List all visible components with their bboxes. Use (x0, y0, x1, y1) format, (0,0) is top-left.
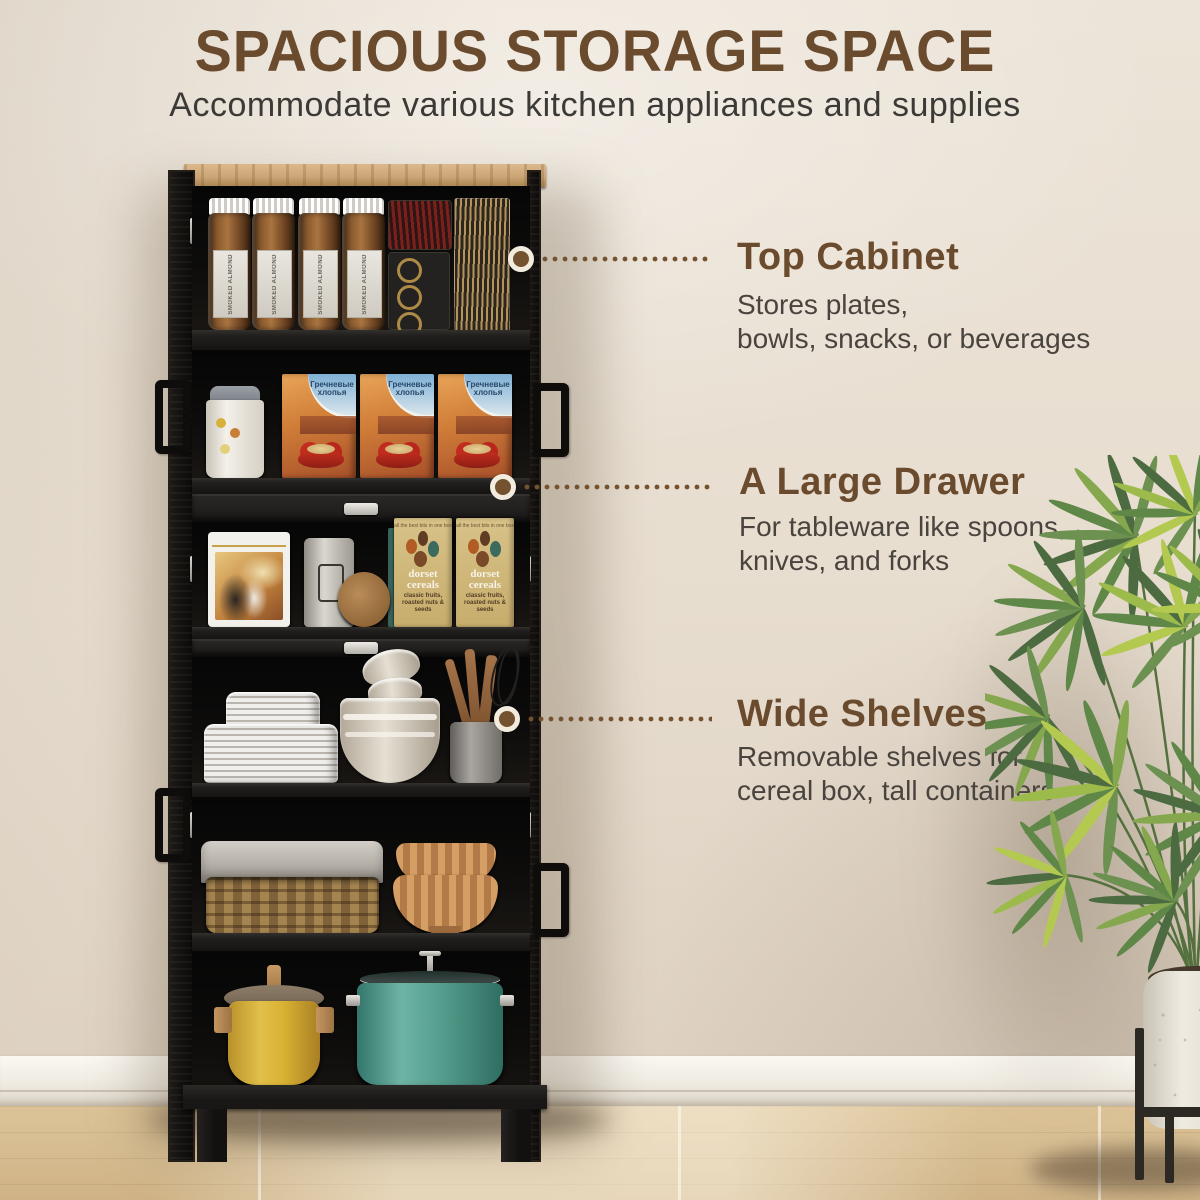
shelf-board (192, 933, 530, 951)
dorset-flavor: classic fruits, roasted nuts & seeds (456, 593, 514, 614)
cereal-box: Гречневые хлопья (360, 374, 434, 478)
cabinet-leg (197, 1109, 227, 1162)
jar-label: SMOKED ALMOND (303, 250, 338, 318)
lid-knob (419, 951, 441, 956)
canister-body (206, 400, 264, 478)
cereal-box-label: Гречневые хлопья (388, 381, 432, 397)
ring-container (388, 252, 450, 330)
almond-jar: SMOKED ALMOND (342, 198, 385, 330)
teal-stock-pot (357, 951, 503, 1085)
shelf-compartment-bottom (192, 951, 530, 1106)
yellow-dutch-oven (228, 965, 320, 1085)
dorset-flavor: classic fruits, roasted nuts & seeds (394, 593, 452, 614)
tin-illustration (215, 552, 283, 620)
wooden-board (338, 572, 390, 627)
page-title: SPACIOUS STORAGE SPACE (24, 18, 1166, 85)
callout-dotted-line (526, 716, 712, 722)
callout-desc-line: bowls, snacks, or beverages (737, 322, 1090, 356)
pot-body (357, 983, 503, 1085)
callout-title: Wide Shelves (737, 693, 988, 736)
cereal-bowl-graphic (454, 442, 500, 470)
left-door-handle-top (155, 380, 191, 454)
plate-stack-large (204, 724, 338, 783)
callout-description: Stores plates, bowls, snacks, or beverag… (737, 288, 1090, 356)
dorset-cereal-box: all the best bits in one box dorset cere… (456, 518, 514, 627)
wicker-basket (206, 877, 379, 933)
dorset-cereal-box: all the best bits in one box dorset cere… (394, 518, 452, 627)
bowl-rim (343, 714, 437, 720)
cereal-box-field (300, 416, 356, 434)
leaf-motif-icon (456, 529, 514, 569)
shelf-compartment-2: Гречневые хлопья Гречневые хлопья Гречне… (192, 350, 530, 478)
utensil-crock (450, 722, 502, 783)
callout-dot (508, 246, 534, 272)
cabinet-wood-top (184, 164, 546, 187)
dorset-brand: dorset cereals (456, 569, 514, 591)
wooden-handle (316, 1007, 334, 1033)
mixing-bowl (340, 698, 440, 783)
storage-cabinet: SMOKED ALMOND SMOKED ALMOND SMOKED ALMON… (168, 164, 564, 1164)
steel-handle (500, 995, 514, 1006)
left-door-handle-bottom (155, 788, 191, 862)
cereal-bowl-graphic (298, 442, 344, 470)
pasta-container (388, 200, 452, 250)
product-infographic: { "header": { "title": "SPACIOUS STORAGE… (0, 0, 1200, 1200)
canister-label-dots (216, 418, 226, 428)
jar-label: SMOKED ALMOND (213, 250, 248, 318)
page-subtitle: Accommodate various kitchen appliances a… (0, 86, 1190, 125)
callout-dotted-line (522, 484, 712, 490)
jar-label: SMOKED ALMOND (347, 250, 382, 318)
left-open-door (168, 170, 195, 1162)
shelf-compartment-5 (192, 797, 530, 933)
drawer-pull (344, 642, 378, 654)
spaghetti-container (454, 198, 510, 332)
almond-jar: SMOKED ALMOND (298, 198, 341, 330)
callout-title: Top Cabinet (737, 236, 959, 279)
cereal-box: Гречневые хлопья (438, 374, 512, 478)
dorset-brand: dorset cereals (394, 569, 452, 591)
drawer-pull (344, 503, 378, 515)
cereal-box-field (456, 416, 512, 434)
drawer-front (192, 639, 530, 657)
leaf-motif-icon (394, 529, 452, 569)
almond-jar: SMOKED ALMOND (252, 198, 295, 330)
pot-body (228, 1001, 320, 1085)
tin-gold-line (212, 545, 286, 547)
cereal-box: Гречневые хлопья (282, 374, 356, 478)
callout-title: A Large Drawer (739, 461, 1025, 504)
callout-dot (490, 474, 516, 500)
illustrated-tin (208, 532, 290, 627)
ribbed-bowl (393, 875, 498, 933)
shelf-board (192, 330, 530, 350)
callout-dotted-line (540, 256, 712, 262)
cereal-box-field (378, 416, 434, 434)
shelf-compartment-4 (192, 657, 530, 783)
shelf-compartment-3: all the best bits in one box dorset cere… (192, 522, 530, 627)
shelf-board (192, 478, 530, 494)
cabinet-leg (501, 1109, 531, 1162)
steel-handle (346, 995, 360, 1006)
plant-pot (1143, 971, 1200, 1129)
shelf-board (192, 783, 530, 797)
white-canister (206, 386, 264, 478)
shelf-board (192, 627, 530, 639)
bowl-rim (345, 732, 435, 737)
shelf-compartment-top: SMOKED ALMOND SMOKED ALMOND SMOKED ALMON… (192, 186, 530, 330)
wooden-handle (214, 1007, 232, 1033)
callout-desc-line: Stores plates, (737, 288, 1090, 322)
callout-dot (494, 706, 520, 732)
cabinet-base (183, 1085, 547, 1109)
jar-label: SMOKED ALMOND (257, 250, 292, 318)
cereal-box-label: Гречневые хлопья (310, 381, 354, 397)
potted-palm-plant (985, 455, 1200, 1200)
cereal-box-label: Гречневые хлопья (466, 381, 510, 397)
right-door-handle-top (533, 383, 569, 457)
cereal-bowl-graphic (376, 442, 422, 470)
right-door-handle-bottom (533, 863, 569, 937)
cabinet-interior: SMOKED ALMOND SMOKED ALMOND SMOKED ALMON… (192, 186, 530, 1106)
almond-jar: SMOKED ALMOND (208, 198, 251, 330)
